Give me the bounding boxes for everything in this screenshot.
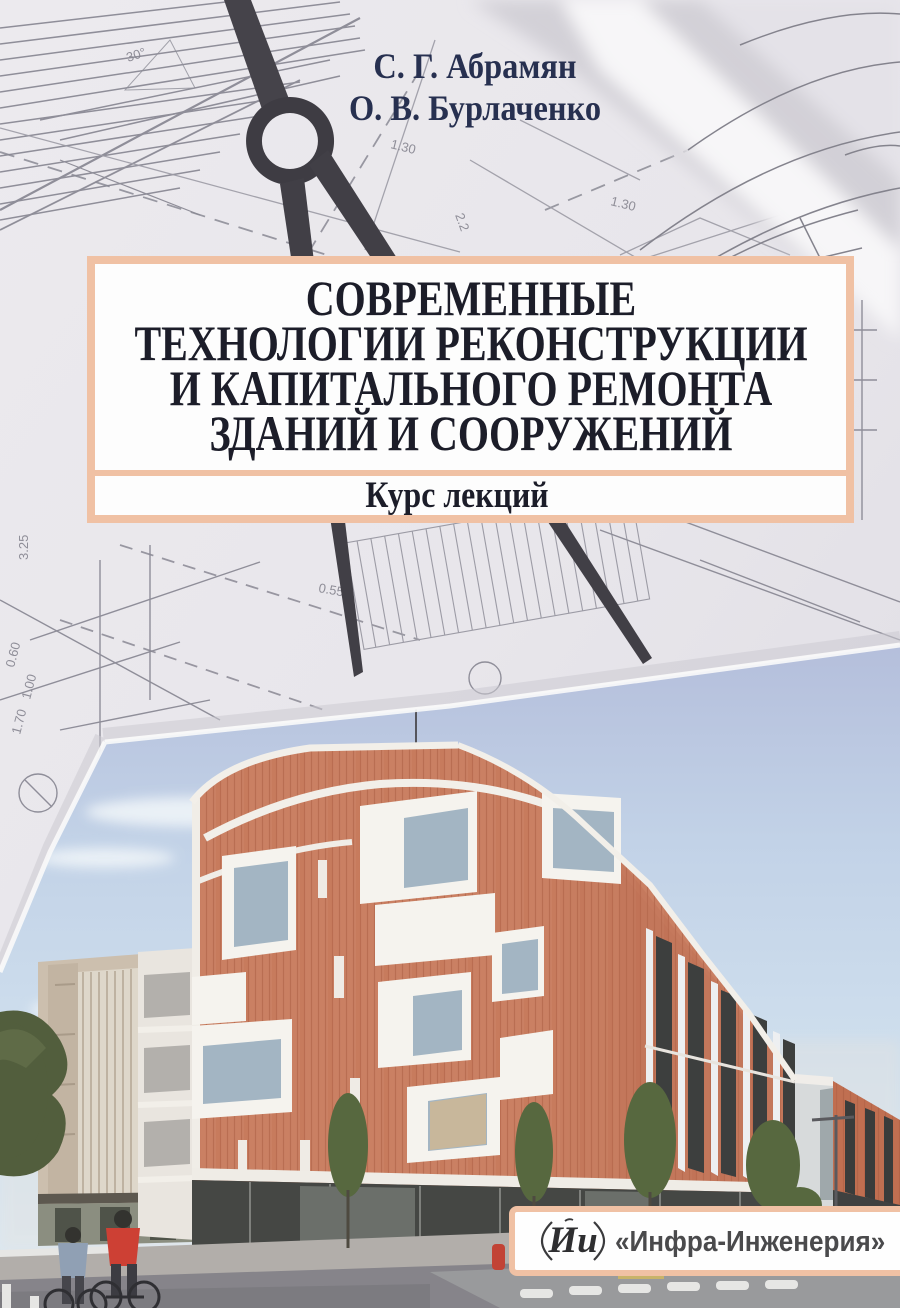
svg-text:Ии: Ии	[547, 1220, 597, 1261]
svg-text:3.25: 3.25	[16, 535, 31, 560]
